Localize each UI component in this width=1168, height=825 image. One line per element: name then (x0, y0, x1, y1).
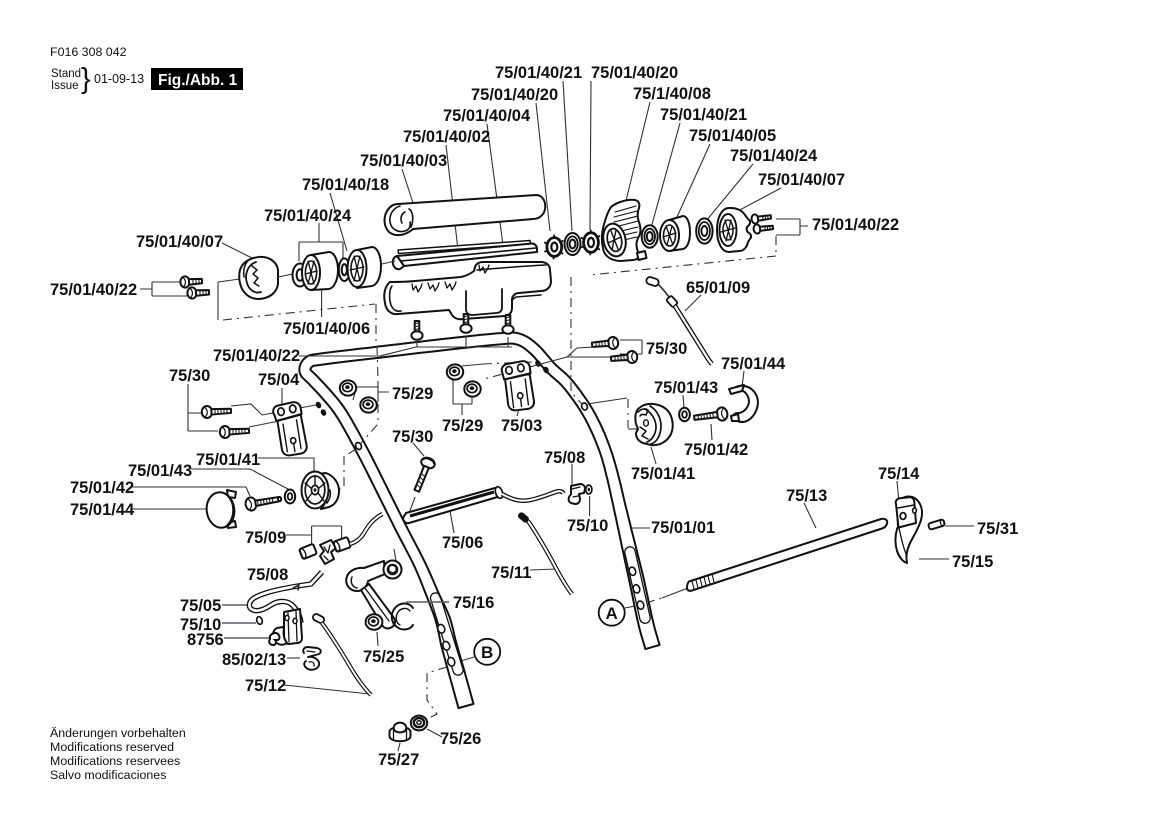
svg-text:75/01/40/22: 75/01/40/22 (213, 347, 300, 365)
svg-text:75/01/40/03: 75/01/40/03 (360, 152, 447, 170)
svg-text:75/01/43: 75/01/43 (654, 379, 718, 397)
svg-text:}: } (81, 63, 91, 95)
svg-text:75/08: 75/08 (544, 449, 585, 467)
svg-text:75/01/40/20: 75/01/40/20 (471, 86, 558, 104)
svg-text:75/13: 75/13 (786, 487, 827, 505)
svg-text:75/29: 75/29 (392, 385, 433, 403)
svg-text:75/1/40/08: 75/1/40/08 (633, 85, 711, 103)
svg-text:75/01/42: 75/01/42 (70, 479, 134, 497)
svg-text:75/27: 75/27 (378, 751, 419, 769)
svg-text:Modifications reserved: Modifications reserved (50, 740, 174, 754)
svg-text:75/01/41: 75/01/41 (631, 465, 695, 483)
svg-text:75/01/40/18: 75/01/40/18 (302, 176, 389, 194)
svg-text:75/09: 75/09 (245, 529, 286, 547)
svg-text:75/01/40/24: 75/01/40/24 (730, 147, 818, 165)
svg-text:75/04: 75/04 (258, 371, 300, 389)
svg-text:75/25: 75/25 (363, 648, 404, 666)
svg-text:75/01/01: 75/01/01 (651, 519, 715, 537)
svg-text:Salvo modificaciones: Salvo modificaciones (50, 768, 166, 782)
svg-text:75/30: 75/30 (392, 428, 433, 446)
svg-text:75/01/40/02: 75/01/40/02 (403, 128, 490, 146)
svg-text:75/05: 75/05 (180, 597, 221, 615)
svg-text:75/01/40/21: 75/01/40/21 (660, 106, 747, 124)
svg-text:75/26: 75/26 (440, 730, 481, 748)
svg-text:75/01/40/24: 75/01/40/24 (264, 207, 352, 225)
svg-text:75/08: 75/08 (247, 566, 288, 584)
svg-text:75/30: 75/30 (169, 367, 210, 385)
svg-text:A: A (606, 604, 618, 623)
svg-text:Änderungen vorbehalten: Änderungen vorbehalten (50, 726, 186, 740)
svg-text:75/16: 75/16 (453, 594, 494, 612)
svg-text:75/31: 75/31 (977, 520, 1018, 538)
svg-text:75/06: 75/06 (442, 534, 483, 552)
svg-text:F016 308 042: F016 308 042 (50, 45, 127, 59)
svg-text:75/01/40/22: 75/01/40/22 (812, 216, 899, 234)
svg-text:75/10: 75/10 (567, 517, 608, 535)
svg-text:75/01/40/22: 75/01/40/22 (50, 281, 137, 299)
svg-text:75/01/41: 75/01/41 (196, 451, 260, 469)
svg-text:75/01/43: 75/01/43 (128, 462, 192, 480)
svg-text:75/29: 75/29 (442, 417, 483, 435)
svg-text:75/30: 75/30 (646, 340, 687, 358)
svg-text:8756: 8756 (187, 631, 224, 649)
svg-text:01-09-13: 01-09-13 (94, 72, 144, 86)
svg-text:Modifications reservees: Modifications reservees (50, 754, 180, 768)
svg-text:Fig./Abb. 1: Fig./Abb. 1 (158, 72, 238, 89)
svg-text:75/15: 75/15 (952, 553, 993, 571)
svg-text:Stand: Stand (51, 68, 81, 80)
svg-text:75/14: 75/14 (878, 465, 920, 483)
svg-text:75/01/40/21: 75/01/40/21 (495, 64, 582, 82)
svg-text:75/01/40/20: 75/01/40/20 (591, 64, 678, 82)
svg-text:75/01/44: 75/01/44 (70, 501, 135, 519)
svg-text:75/11: 75/11 (491, 564, 531, 582)
svg-text:65/01/09: 65/01/09 (686, 279, 750, 297)
svg-text:B: B (481, 643, 493, 662)
svg-text:Issue: Issue (51, 80, 79, 92)
svg-text:75/01/40/07: 75/01/40/07 (136, 233, 223, 251)
svg-text:75/12: 75/12 (245, 677, 286, 695)
svg-text:75/01/42: 75/01/42 (684, 441, 748, 459)
svg-text:75/01/40/05: 75/01/40/05 (689, 127, 776, 145)
svg-text:75/03: 75/03 (501, 417, 542, 435)
svg-text:75/01/44: 75/01/44 (721, 355, 786, 373)
svg-text:75/01/40/07: 75/01/40/07 (758, 171, 845, 189)
svg-text:75/01/40/04: 75/01/40/04 (443, 107, 531, 125)
svg-text:75/01/40/06: 75/01/40/06 (283, 320, 370, 338)
svg-text:85/02/13: 85/02/13 (222, 651, 286, 669)
